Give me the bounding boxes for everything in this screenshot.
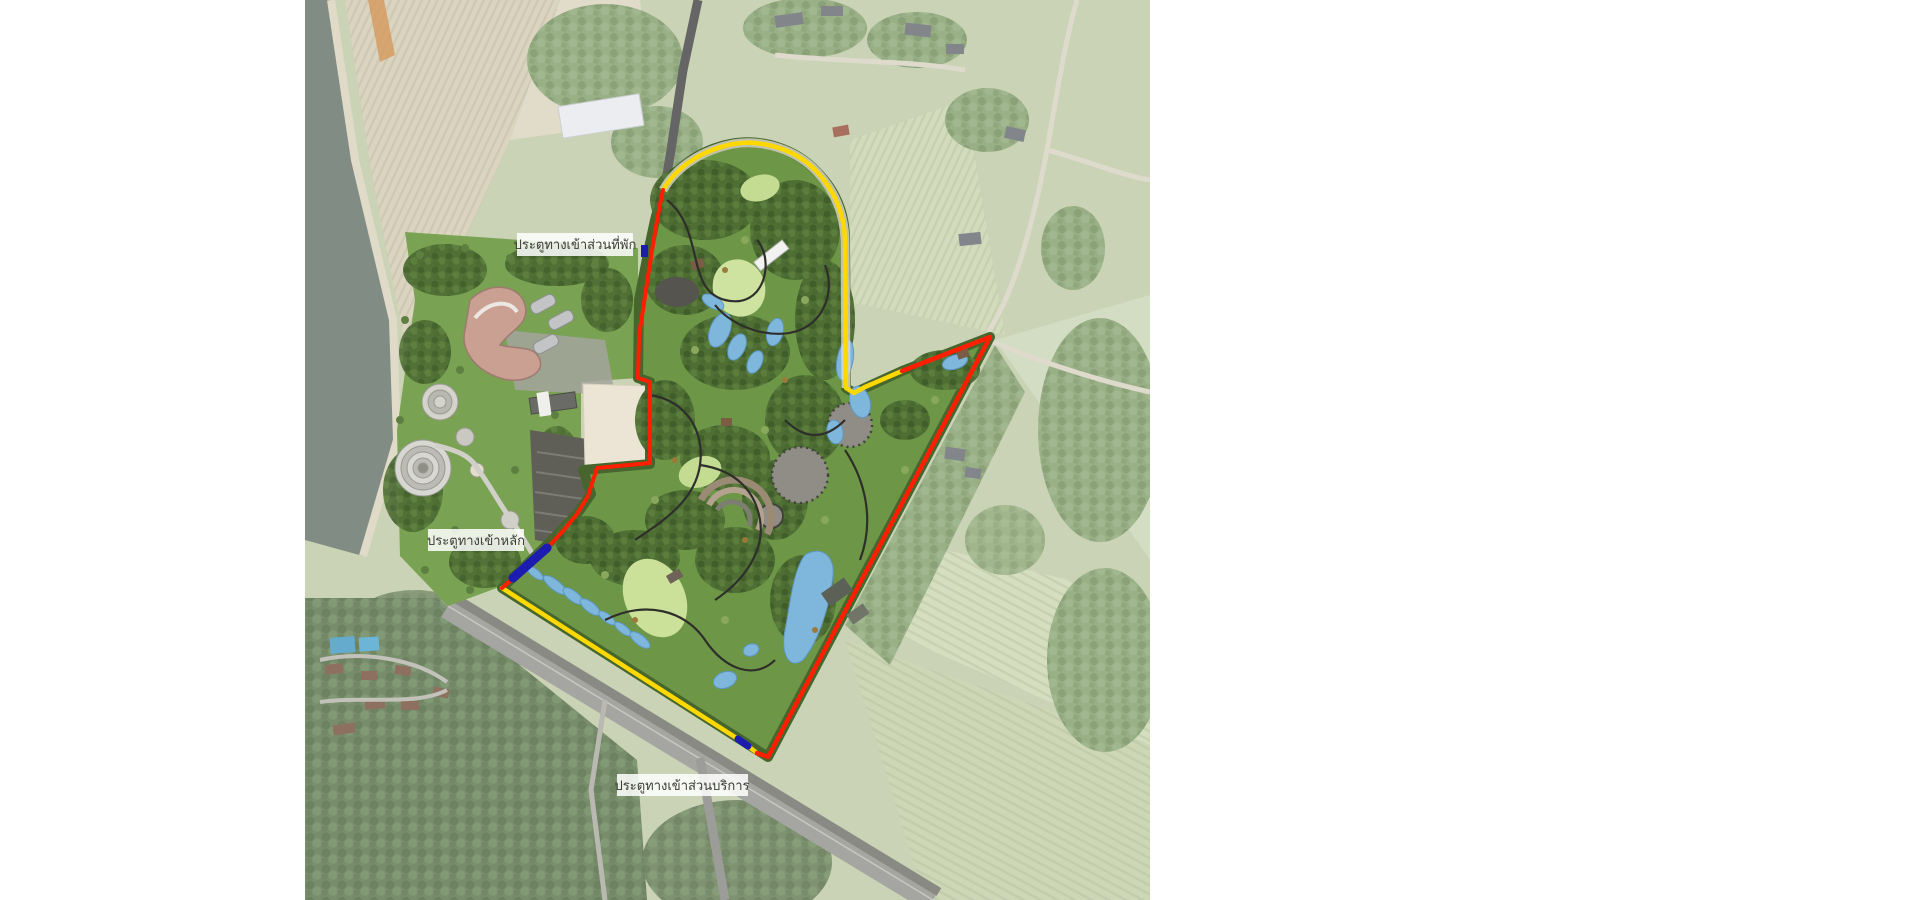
map-label-main-gate: ประตูทางเข้าหลัก bbox=[427, 529, 525, 551]
site-plan-canvas: ประตูทางเข้าส่วนที่พัก ประตูทางเข้าหลัก … bbox=[305, 0, 1150, 900]
residence-gate-label: ประตูทางเข้าส่วนที่พัก bbox=[514, 236, 637, 253]
gate-residence bbox=[641, 245, 648, 257]
map-label-service-gate: ประตูทางเข้าส่วนบริการ bbox=[614, 774, 749, 796]
aerial-site-plan: ประตูทางเข้าส่วนที่พัก ประตูทางเข้าหลัก … bbox=[305, 0, 1150, 900]
service-gate-label: ประตูทางเข้าส่วนบริการ bbox=[614, 778, 749, 794]
legend-panel: รั้วเดิม รั้วสร้างใหม่เพิ่มเติม ประตูทาง… bbox=[1150, 0, 1920, 900]
site-plan-page: ประตูทางเข้าส่วนที่พัก ประตูทางเข้าหลัก … bbox=[0, 0, 1920, 900]
main-gate-label: ประตูทางเข้าหลัก bbox=[427, 533, 525, 549]
map-label-residence-gate: ประตูทางเข้าส่วนที่พัก bbox=[514, 233, 637, 256]
